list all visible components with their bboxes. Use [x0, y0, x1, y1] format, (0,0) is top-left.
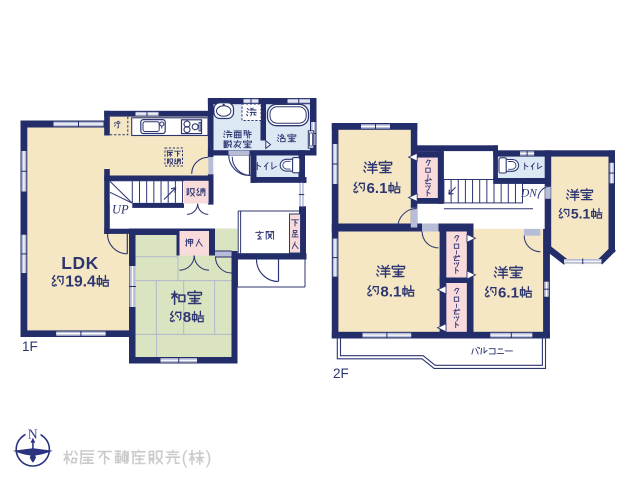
- svg-text:6.1: 6.1: [367, 180, 388, 197]
- svg-text:8.1: 8.1: [380, 283, 401, 300]
- svg-text:5.1: 5.1: [571, 206, 591, 222]
- svg-text:8: 8: [183, 309, 191, 326]
- svg-text:): ): [205, 447, 211, 468]
- svg-text:(: (: [182, 447, 189, 468]
- svg-text:LDK: LDK: [61, 253, 98, 273]
- svg-text:2F: 2F: [333, 366, 349, 381]
- svg-text:DN: DN: [520, 188, 538, 200]
- svg-text:1F: 1F: [22, 339, 38, 354]
- svg-text:19.4: 19.4: [65, 274, 96, 291]
- svg-text:6.1: 6.1: [498, 284, 519, 301]
- svg-text:UP: UP: [112, 203, 129, 217]
